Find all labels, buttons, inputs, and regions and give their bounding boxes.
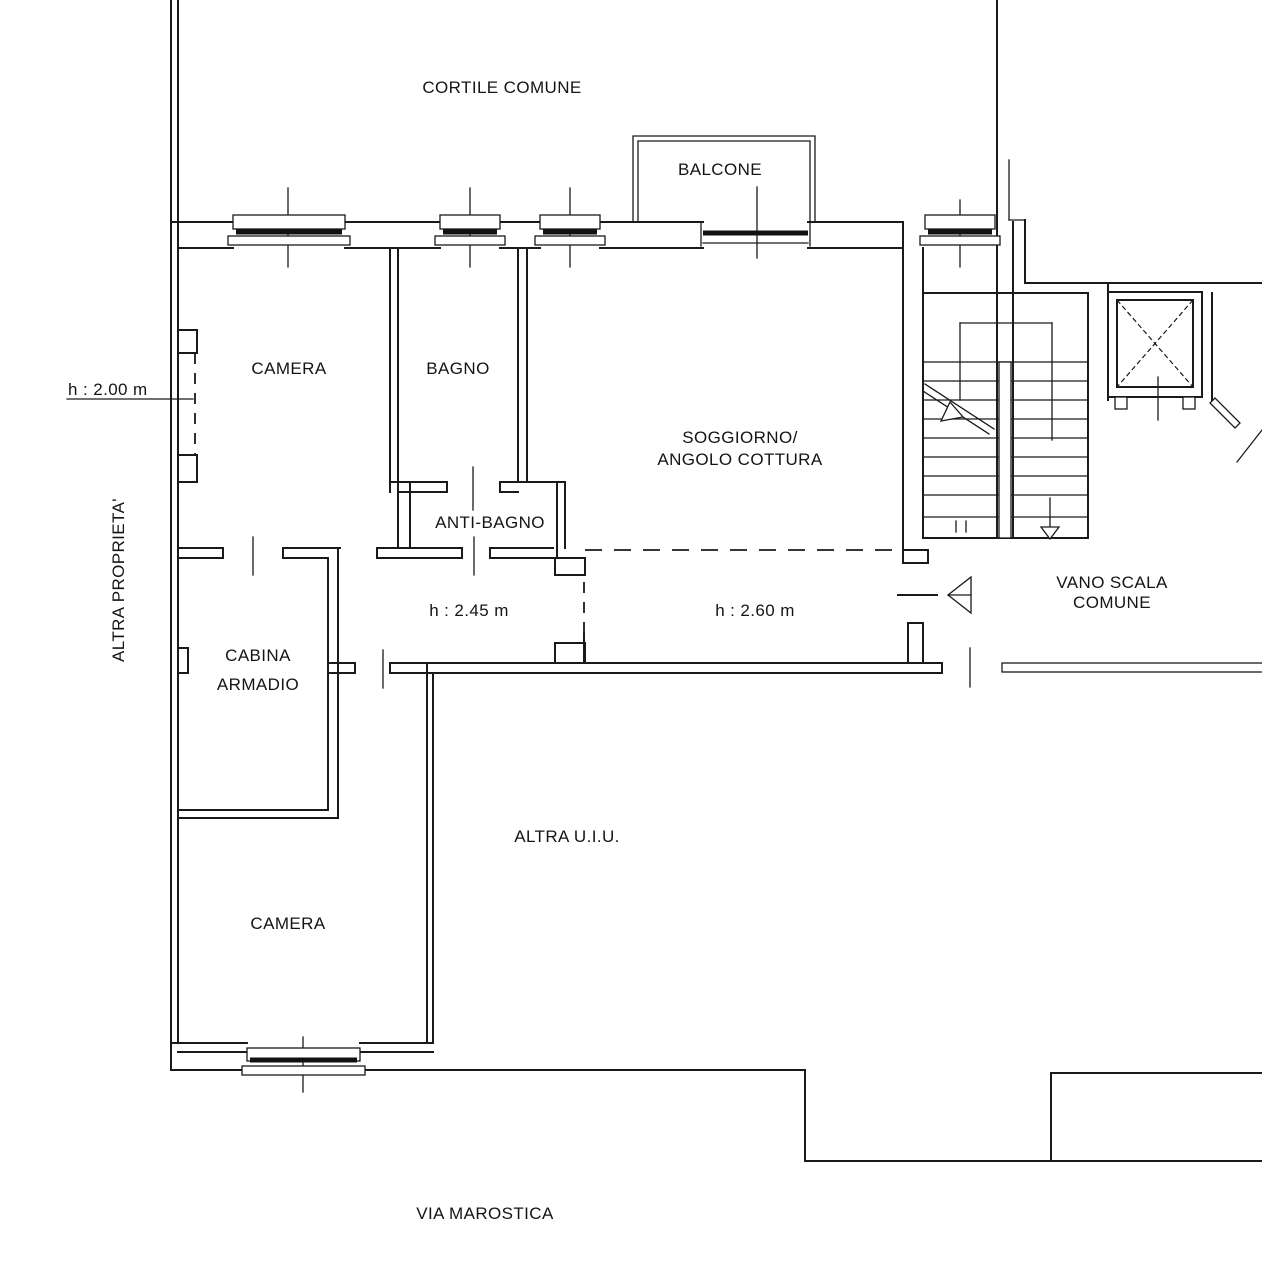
stair-down-arrow-icon [1041,498,1059,539]
room-label-soggiorno-line2: ANGOLO COTTURA [657,450,822,469]
room-label-camera-bottom: CAMERA [250,914,325,933]
area-label-vano-scala-line1: VANO SCALA [1056,573,1168,592]
entrance-arrow-icon [898,577,971,613]
window-icon [228,188,350,267]
balcony-outline [633,136,815,258]
elevator-icon [1108,292,1202,420]
window-icon [920,200,1000,267]
room-label-camera-top: CAMERA [251,359,326,378]
room-label-anti-bagno: ANTI-BAGNO [435,513,545,532]
room-label-bagno: BAGNO [426,359,489,378]
room-label-soggiorno-line1: SOGGIORNO/ [682,428,797,447]
stair-direction-arrow-icon [923,384,994,434]
interior-walls [171,248,1262,1052]
staircase [923,222,1108,539]
window-icon [242,1037,365,1092]
street-label-via-marostica: VIA MAROSTICA [416,1204,554,1223]
floor-plan-canvas: CORTILE COMUNE BALCONE CAMERA BAGNO SOGG… [0,0,1262,1270]
area-label-altra-uiu: ALTRA U.I.U. [514,827,620,846]
height-label-camera: h : 2.00 m [68,380,148,399]
floor-plan-page: CORTILE COMUNE BALCONE CAMERA BAGNO SOGG… [0,0,1262,1270]
room-label-cabina-line1: CABINA [225,646,291,665]
door-leaf-icon [1210,293,1262,462]
height-label-soggiorno: h : 2.60 m [715,601,795,620]
area-label-cortile-comune: CORTILE COMUNE [422,78,581,97]
room-label-balcone: BALCONE [678,160,762,179]
area-label-altra-proprieta: ALTRA PROPRIETA' [109,498,128,662]
window-icon [435,188,505,267]
window-icon [535,188,605,267]
room-label-cabina-line2: ARMADIO [217,675,299,694]
height-label-corridor: h : 2.45 m [429,601,509,620]
area-label-vano-scala-line2: COMUNE [1073,593,1151,612]
